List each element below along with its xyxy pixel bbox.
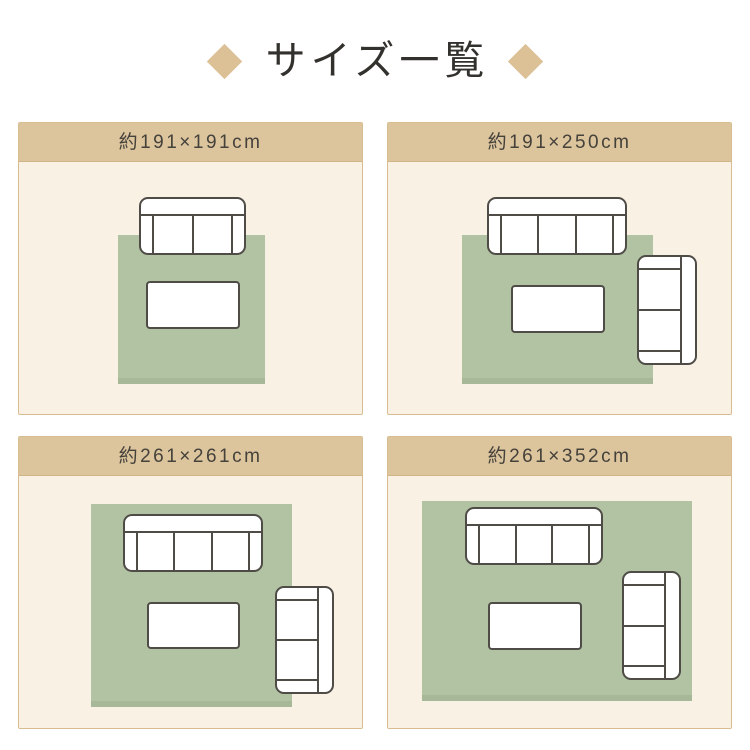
sofa-seats — [141, 216, 244, 253]
sofa-cushion — [639, 309, 680, 350]
sofa-2seat-vertical-illustration — [275, 586, 334, 694]
sofa-3seat-illustration — [487, 197, 627, 255]
sofa-armrest — [248, 533, 261, 570]
size-panel-header: 約191×250cm — [388, 123, 731, 162]
sofa-backrest — [317, 588, 332, 692]
sofa-cushion — [211, 533, 248, 570]
page-title-row: サイズ一覧 — [0, 0, 750, 122]
size-panel-grid: 約191×191cm 約191×250cm — [0, 122, 750, 729]
sofa-armrest — [639, 350, 680, 363]
sofa-cushion — [624, 625, 664, 666]
sofa-seats — [467, 526, 601, 563]
sofa-seats — [125, 533, 261, 570]
sofa-backrest — [664, 573, 679, 678]
sofa-2seat-illustration — [139, 197, 246, 255]
sofa-cushion — [624, 586, 664, 625]
sofa-armrest — [467, 526, 480, 563]
sofa-2seat-vertical-illustration — [637, 255, 697, 365]
sofa-3seat-illustration — [465, 507, 603, 565]
sofa-cushion — [537, 216, 574, 253]
sofa-cushion — [138, 533, 173, 570]
size-label: 約261×352cm — [488, 447, 632, 466]
sofa-armrest — [639, 257, 680, 270]
low-table-illustration — [147, 602, 240, 649]
sofa-cushion — [639, 270, 680, 309]
sofa-seats — [277, 588, 317, 692]
sofa-armrest — [624, 573, 664, 586]
size-panel-header: 約191×191cm — [19, 123, 362, 162]
sofa-armrest — [125, 533, 138, 570]
sofa-cushion — [502, 216, 537, 253]
low-table-illustration — [488, 602, 582, 650]
diamond-icon — [206, 43, 241, 78]
size-panel-191x191: 約191×191cm — [18, 122, 363, 415]
sofa-cushion — [154, 216, 192, 253]
sofa-3seat-illustration — [123, 514, 263, 572]
sofa-cushion — [277, 601, 317, 639]
sofa-armrest — [588, 526, 601, 563]
size-label: 約191×191cm — [119, 133, 263, 152]
sofa-backrest — [125, 516, 261, 533]
sofa-armrest — [624, 665, 664, 678]
sofa-backrest — [489, 199, 625, 216]
sofa-cushion — [277, 639, 317, 679]
size-panel-191x250: 約191×250cm — [387, 122, 732, 415]
sofa-backrest — [680, 257, 695, 363]
sofa-backrest — [467, 509, 601, 526]
sofa-armrest — [231, 216, 244, 253]
low-table-illustration — [146, 281, 240, 329]
sofa-armrest — [277, 679, 317, 692]
sofa-cushion — [173, 533, 210, 570]
sofa-seats — [639, 257, 680, 363]
page-title: サイズ一覧 — [261, 41, 490, 81]
size-label: 約261×261cm — [119, 447, 263, 466]
sofa-armrest — [277, 588, 317, 601]
size-label: 約191×250cm — [488, 133, 632, 152]
size-panel-261x261: 約261×261cm — [18, 436, 363, 729]
low-table-illustration — [511, 285, 605, 333]
diamond-icon — [508, 43, 543, 78]
sofa-backrest — [141, 199, 244, 216]
sofa-armrest — [141, 216, 154, 253]
sofa-armrest — [489, 216, 502, 253]
sofa-cushion — [192, 216, 232, 253]
size-panel-header: 約261×261cm — [19, 437, 362, 476]
sofa-cushion — [551, 526, 588, 563]
sofa-seats — [624, 573, 664, 678]
sofa-cushion — [515, 526, 552, 563]
sofa-armrest — [612, 216, 625, 253]
sofa-seats — [489, 216, 625, 253]
size-panel-261x352: 約261×352cm — [387, 436, 732, 729]
sofa-cushion — [480, 526, 515, 563]
sofa-cushion — [575, 216, 612, 253]
size-panel-header: 約261×352cm — [388, 437, 731, 476]
sofa-2seat-vertical-illustration — [622, 571, 681, 680]
